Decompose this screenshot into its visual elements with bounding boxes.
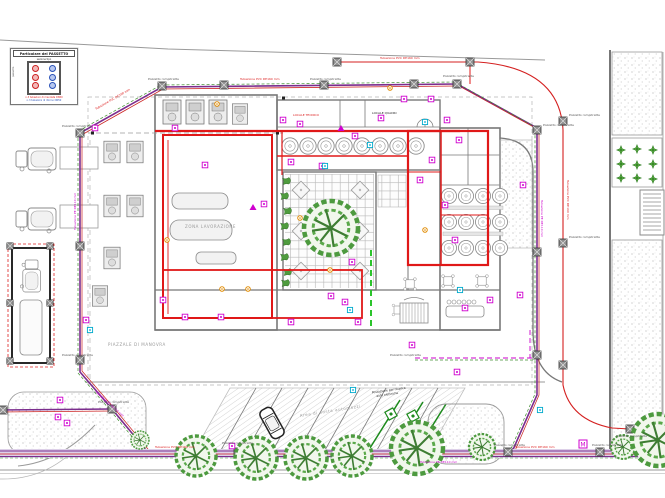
supply-pipes-icon — [32, 65, 39, 89]
svg-text:Pozzetto rompitratta: Pozzetto rompitratta — [592, 443, 623, 447]
funnel-symbol-2 — [250, 204, 257, 210]
legend-title: Particolare del PASSETTO — [13, 50, 75, 57]
svg-text:Tubazione PVC DE160 mm: Tubazione PVC DE160 mm — [379, 56, 420, 60]
tanker-trucks — [16, 148, 56, 233]
svg-text:Tubazione PE DE110 mm: Tubazione PE DE110 mm — [419, 460, 457, 464]
svg-text:Pozzetto rompitratta: Pozzetto rompitratta — [543, 123, 574, 127]
legend-side-label: passetto — [12, 67, 15, 77]
courtyard-tree — [304, 201, 358, 255]
stairs-interior — [400, 298, 428, 324]
external-stairs — [640, 190, 664, 235]
top-boundary-line — [0, 40, 545, 60]
svg-text:Pozzetto rompitratta: Pozzetto rompitratta — [310, 77, 341, 81]
weighbridge — [7, 243, 54, 367]
svg-text:Tubazione PVC DE160 mm: Tubazione PVC DE160 mm — [566, 179, 570, 220]
svg-text:Pozzetto rompitratta: Pozzetto rompitratta — [569, 235, 600, 239]
svg-text:LOCALE TECNICO: LOCALE TECNICO — [293, 113, 320, 117]
funnel-symbol — [338, 125, 345, 131]
svg-text:PIAZZALE DI MANOVRA: PIAZZALE DI MANOVRA — [108, 342, 166, 347]
tank-rows-right-wing — [441, 188, 507, 255]
svg-text:Tubazione PVC DE160 mm: Tubazione PVC DE160 mm — [514, 445, 555, 449]
svg-text:Pozzetto rompitratta: Pozzetto rompitratta — [616, 434, 647, 438]
svg-text:Pozzetto rompitratta: Pozzetto rompitratta — [222, 441, 253, 445]
svg-text:Tubazione PVC DE160 mm: Tubazione PVC DE160 mm — [239, 77, 280, 81]
passetto-detail-icon — [27, 61, 61, 95]
return-pipes-icon — [49, 65, 56, 89]
svg-text:LOCALE QUADRI: LOCALE QUADRI — [372, 111, 397, 115]
svg-text:Tubazione PE DE110 mm: Tubazione PE DE110 mm — [540, 199, 544, 237]
svg-text:M: M — [580, 442, 585, 449]
meter-box: M — [579, 440, 587, 449]
gravel-area-top-right — [612, 52, 662, 135]
svg-text:Pozzetto rompitratta: Pozzetto rompitratta — [569, 113, 600, 117]
legend-box: Particolare del PASSETTO sezione tipo n.… — [10, 48, 78, 105]
site-plan-canvas: Particolare del PASSETTO sezione tipo n.… — [0, 0, 665, 498]
svg-text:Pozzetto rompitratta: Pozzetto rompitratta — [390, 353, 421, 357]
svg-text:ZONA LAVORAZIONE: ZONA LAVORAZIONE — [185, 224, 236, 229]
svg-text:Tubazione PVC DE160 mm: Tubazione PVC DE160 mm — [154, 445, 195, 449]
legend-caption-return: n.3 tubazioni di ritorno DN50 — [11, 99, 77, 102]
svg-text:Tubazione PE DE110 mm: Tubazione PE DE110 mm — [73, 193, 77, 231]
top-middle-block-walls — [277, 100, 440, 170]
right-boundary-strip — [610, 50, 664, 456]
svg-text:Pozzetto rompitratta: Pozzetto rompitratta — [443, 74, 474, 78]
svg-text:Pozzetto rompitratta: Pozzetto rompitratta — [62, 124, 93, 128]
storage-grid — [378, 175, 406, 207]
site-plan-svg: Postazione per ricarica auto elettriche … — [0, 0, 665, 498]
tank-row-top — [282, 138, 424, 154]
svg-text:Pozzetto rompitratta: Pozzetto rompitratta — [148, 77, 179, 81]
svg-text:Pozzetto rompitratta: Pozzetto rompitratta — [62, 353, 93, 357]
